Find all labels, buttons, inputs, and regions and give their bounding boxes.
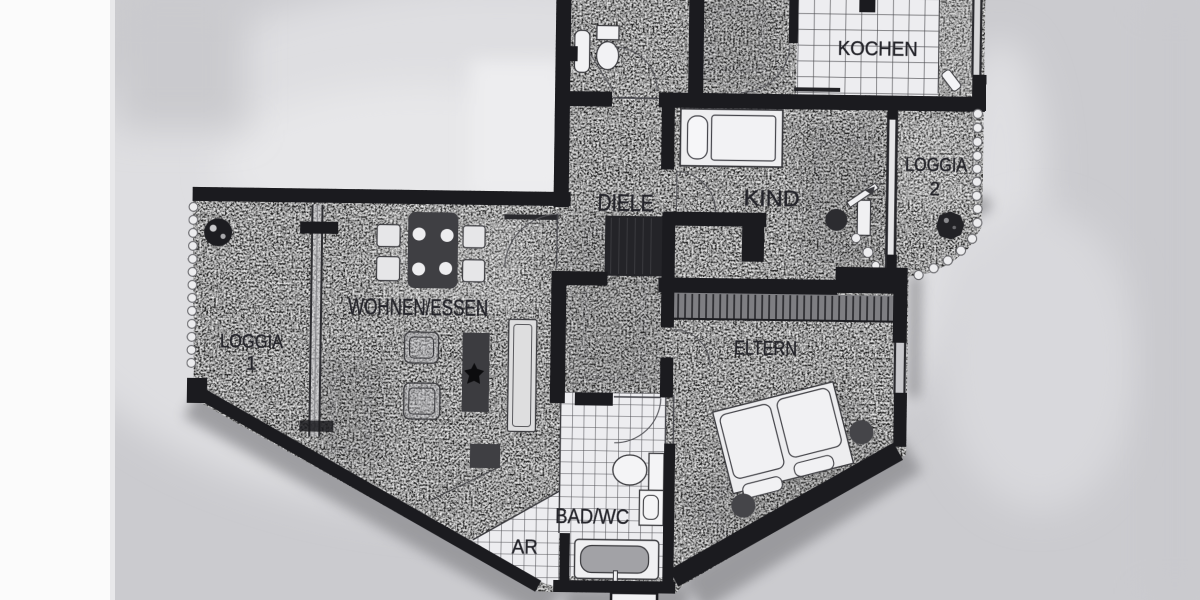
svg-text:KIND: KIND	[743, 186, 799, 212]
svg-text:ELTERN: ELTERN	[734, 336, 797, 360]
svg-text:WOHNEN/ESSEN: WOHNEN/ESSEN	[348, 293, 488, 321]
svg-text:KOCHEN: KOCHEN	[838, 38, 918, 61]
svg-text:LOGGIA: LOGGIA	[220, 331, 284, 353]
svg-text:DIELE: DIELE	[597, 190, 653, 218]
svg-text:LOGGIA: LOGGIA	[905, 155, 968, 177]
svg-text:AR: AR	[512, 535, 538, 558]
svg-text:BAD/WC: BAD/WC	[555, 504, 629, 529]
svg-text:2: 2	[929, 179, 940, 200]
svg-text:1: 1	[246, 354, 257, 375]
